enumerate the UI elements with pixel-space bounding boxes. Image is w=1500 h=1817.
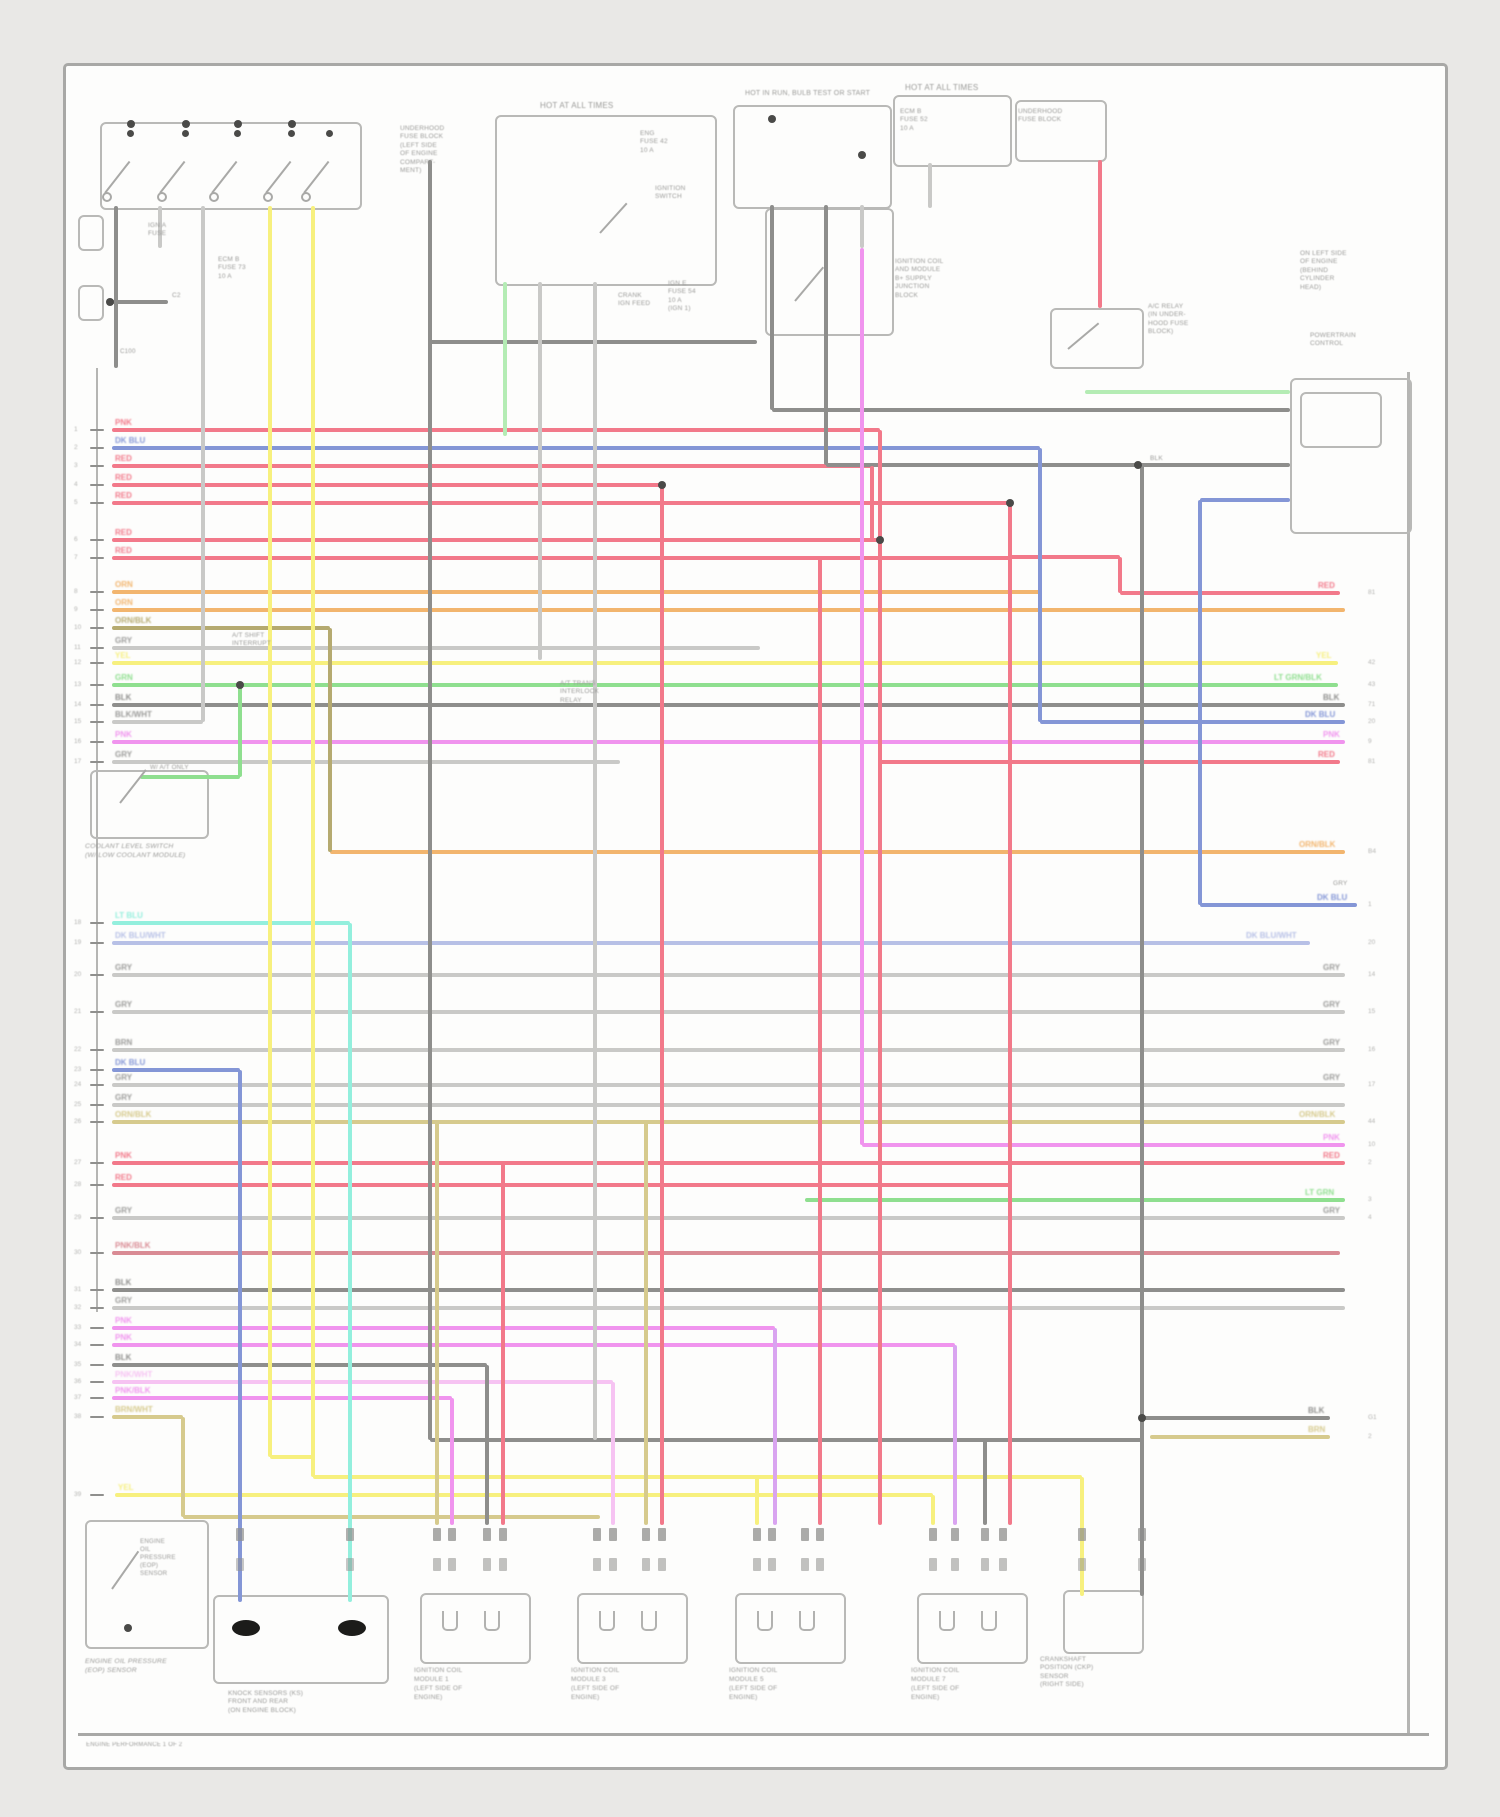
connector-stub bbox=[981, 1558, 989, 1571]
component-box-ckp-sensor-box bbox=[1063, 1590, 1144, 1654]
wire-h bbox=[1150, 1435, 1330, 1439]
wire-label: BRN bbox=[115, 1038, 132, 1047]
left-rail-tick bbox=[90, 1397, 104, 1399]
wire-end-label: RED bbox=[1323, 1151, 1340, 1160]
component-box-connector-c2 bbox=[78, 285, 104, 321]
connector-stub bbox=[999, 1528, 1007, 1541]
pin-number: 30 bbox=[74, 1249, 81, 1256]
pin-number: 17 bbox=[74, 758, 81, 765]
wire-label: RED bbox=[115, 473, 132, 482]
left-rail-tick bbox=[90, 1344, 104, 1346]
left-rail-tick bbox=[90, 647, 104, 649]
wire-h bbox=[112, 1048, 1345, 1052]
wire-h bbox=[430, 1438, 1142, 1442]
text-line: RELAY bbox=[560, 697, 582, 705]
text-line: FRONT AND REAR bbox=[228, 1698, 288, 1706]
connector-stub bbox=[816, 1558, 824, 1571]
component-box-connector-c1 bbox=[78, 215, 104, 251]
wire-label: GRY bbox=[115, 636, 132, 645]
wire-v bbox=[593, 282, 597, 1440]
pcm-pin-number: 14 bbox=[1368, 971, 1375, 978]
junction-dot bbox=[124, 1624, 132, 1632]
connector-stub bbox=[346, 1558, 354, 1571]
coil-caption-line: ENGINE) bbox=[414, 1694, 443, 1702]
connector-stub bbox=[658, 1528, 666, 1541]
connector-stub bbox=[951, 1528, 959, 1541]
pin-number: 11 bbox=[74, 644, 81, 651]
text-line: POSITION (CKP) bbox=[1040, 1664, 1093, 1672]
text-line: FUSE BLOCK bbox=[400, 133, 443, 141]
text-line: IGNITION bbox=[655, 185, 686, 193]
pin-number: 39 bbox=[74, 1491, 81, 1498]
pcm-pin-number: 2 bbox=[1368, 1433, 1372, 1440]
fuse-terminal bbox=[127, 130, 134, 137]
text-line: SENSOR bbox=[1040, 1673, 1069, 1681]
connector-stub bbox=[951, 1558, 959, 1571]
connector-stub bbox=[658, 1558, 666, 1571]
left-rail-tick bbox=[90, 609, 104, 611]
connector-stub bbox=[448, 1558, 456, 1571]
text-line: POWERTRAIN bbox=[1310, 332, 1356, 340]
text-line: FUSE 73 bbox=[218, 264, 246, 272]
wire-label: PNK bbox=[115, 730, 132, 739]
wire-end-label: GRY bbox=[1323, 1206, 1340, 1215]
component-box-relay-box bbox=[1050, 308, 1144, 369]
text-line: SENSOR bbox=[140, 1570, 167, 1578]
left-rail-tick bbox=[90, 684, 104, 686]
left-rail-tick bbox=[90, 539, 104, 541]
wire-h bbox=[112, 1120, 1345, 1124]
wire-h bbox=[112, 446, 1040, 450]
wire-v bbox=[311, 206, 315, 1477]
wire-label: GRY bbox=[115, 1093, 132, 1102]
connector-stub bbox=[816, 1528, 824, 1541]
pcm-pin-number: 81 bbox=[1368, 758, 1375, 765]
pin-number: 10 bbox=[74, 624, 81, 631]
coil-caption-line: IGNITION COIL bbox=[414, 1667, 462, 1675]
pin-number: 28 bbox=[74, 1181, 81, 1188]
pcm-pin-number: B4 bbox=[1368, 848, 1376, 855]
wire-v bbox=[485, 1365, 489, 1525]
text-line: B+ SUPPLY bbox=[895, 275, 932, 283]
wire-h bbox=[1200, 498, 1290, 502]
left-rail-tick bbox=[90, 502, 104, 504]
wire-h bbox=[112, 1306, 1345, 1310]
text-line: OIL bbox=[140, 1546, 151, 1554]
wire-end-label: RED bbox=[1318, 581, 1335, 590]
coil-caption-line: (LEFT SIDE OF bbox=[729, 1685, 777, 1693]
connector-stub bbox=[999, 1558, 1007, 1571]
wire-label: DK BLU bbox=[115, 436, 145, 445]
wire-h bbox=[112, 1068, 240, 1072]
bottom-rule bbox=[78, 1733, 1429, 1736]
wire-v bbox=[1098, 160, 1102, 308]
text-line: CRANK bbox=[618, 292, 642, 300]
pin-number: 27 bbox=[74, 1159, 81, 1166]
coil-pin bbox=[981, 1611, 997, 1631]
wire-v bbox=[268, 206, 272, 1457]
wire-v bbox=[860, 205, 864, 248]
junction-dot bbox=[876, 536, 884, 544]
wire-h bbox=[112, 538, 880, 542]
connector-stub bbox=[609, 1528, 617, 1541]
wire-v bbox=[1008, 503, 1012, 1525]
wire-h bbox=[112, 1216, 1345, 1220]
pcm-pin-number: 20 bbox=[1368, 939, 1375, 946]
wire-v bbox=[538, 282, 542, 660]
fuse-terminal bbox=[182, 130, 189, 137]
wire-end-label: YEL bbox=[1316, 651, 1332, 660]
wire-h bbox=[112, 703, 1345, 707]
wire-h bbox=[112, 501, 1010, 505]
connector-stub bbox=[1078, 1528, 1086, 1541]
pcm-pin-number: 10 bbox=[1368, 1141, 1375, 1148]
wire-v bbox=[348, 923, 352, 1602]
connector-stub bbox=[483, 1558, 491, 1571]
text-line: (RIGHT SIDE) bbox=[1040, 1681, 1084, 1689]
junction-dot bbox=[858, 151, 866, 159]
pin-number: 19 bbox=[74, 939, 81, 946]
coil-pin bbox=[599, 1611, 615, 1631]
wire-v bbox=[878, 430, 882, 1525]
left-rail-tick bbox=[90, 1416, 104, 1418]
wire-v bbox=[928, 163, 932, 208]
text-line: (W/ LOW COOLANT MODULE) bbox=[85, 852, 186, 860]
junction-dot bbox=[658, 481, 666, 489]
wire-h bbox=[826, 463, 1290, 467]
text-line: FUSE BLOCK bbox=[1018, 116, 1061, 124]
wire-v bbox=[931, 1495, 935, 1525]
text-line: IGN A bbox=[148, 222, 166, 230]
left-rail-tick bbox=[90, 465, 104, 467]
pcm-pin-number: 3 bbox=[1368, 1196, 1372, 1203]
left-rail-tick bbox=[90, 721, 104, 723]
wire-h bbox=[112, 661, 1338, 665]
left-rail-tick bbox=[90, 741, 104, 743]
wire-end-label: ORN/BLK bbox=[1299, 1110, 1335, 1119]
pcm-connector-rail bbox=[1407, 372, 1410, 1733]
pin-number: 36 bbox=[74, 1378, 81, 1385]
knock-sensor-terminal bbox=[232, 1620, 260, 1636]
wire-label: ORN bbox=[115, 580, 133, 589]
text-line: (LEFT SIDE bbox=[400, 142, 437, 150]
text-line: HOT AT ALL TIMES bbox=[905, 83, 978, 93]
wire-label: GRY bbox=[115, 1000, 132, 1009]
wire-label: RED bbox=[115, 528, 132, 537]
text-line: A/T SHIFT bbox=[232, 632, 264, 640]
text-line: W/ A/T ONLY bbox=[150, 764, 189, 772]
text-line: ENGINE PERFORMANCE 1 OF 2 bbox=[86, 1742, 182, 1750]
text-line: 10 A bbox=[218, 273, 232, 281]
left-rail-tick bbox=[90, 662, 104, 664]
pin-number: 5 bbox=[74, 499, 78, 506]
wire-end-label: GRY bbox=[1323, 963, 1340, 972]
wire-v bbox=[435, 1122, 439, 1525]
text-line: (EOP) SENSOR bbox=[85, 1667, 137, 1675]
connector-stub bbox=[346, 1528, 354, 1541]
wire-end-label: RED bbox=[1318, 750, 1335, 759]
coil-pin bbox=[641, 1611, 657, 1631]
text-line: (ON ENGINE BLOCK) bbox=[228, 1707, 296, 1715]
wire-end-label: GRY bbox=[1323, 1000, 1340, 1009]
component-box-knock-sensor-box bbox=[213, 1595, 389, 1684]
connector-stub bbox=[499, 1528, 507, 1541]
wire-h bbox=[183, 1515, 600, 1519]
pin-number: 25 bbox=[74, 1101, 81, 1108]
junction-dot bbox=[127, 120, 135, 128]
wire-h bbox=[112, 556, 1010, 560]
left-rail-tick bbox=[90, 1252, 104, 1254]
wire-v bbox=[860, 248, 864, 1145]
wire-h bbox=[112, 1161, 1345, 1165]
wire-label: ORN/BLK bbox=[115, 616, 151, 625]
wire-end-label: PNK bbox=[1323, 730, 1340, 739]
wire-label: PNK/WHT bbox=[115, 1370, 152, 1379]
wire-label: GRY bbox=[115, 1296, 132, 1305]
coil-caption-line: IGNITION COIL bbox=[571, 1667, 619, 1675]
left-rail-tick bbox=[90, 704, 104, 706]
pin-number: 23 bbox=[74, 1066, 81, 1073]
wire-label: PNK bbox=[115, 418, 132, 427]
wire-label: PNK/BLK bbox=[115, 1386, 151, 1395]
wire-h bbox=[112, 626, 330, 630]
wire-label: YEL bbox=[115, 651, 131, 660]
connector-stub bbox=[981, 1528, 989, 1541]
text-line: JUNCTION bbox=[895, 283, 929, 291]
left-rail-tick bbox=[90, 1327, 104, 1329]
ignition-coil-box bbox=[420, 1593, 531, 1664]
left-rail-tick bbox=[90, 922, 104, 924]
wire-v bbox=[770, 205, 774, 410]
coil-pin bbox=[799, 1611, 815, 1631]
wire-label: DK BLU/WHT bbox=[115, 931, 166, 940]
wire-v bbox=[503, 282, 507, 436]
fuse-terminal bbox=[263, 192, 273, 202]
left-rail-tick bbox=[90, 1084, 104, 1086]
text-line: (EOP) bbox=[140, 1562, 158, 1570]
wire-label: BLK/WHT bbox=[115, 710, 152, 719]
pcm-pin-number: 17 bbox=[1368, 1081, 1375, 1088]
text-line: UNDERHOOD bbox=[400, 125, 444, 133]
wire-v bbox=[824, 205, 828, 465]
junction-dot bbox=[234, 120, 242, 128]
connector-stub bbox=[433, 1528, 441, 1541]
pin-number: 35 bbox=[74, 1361, 81, 1368]
wire-label: LT BLU bbox=[115, 911, 143, 920]
left-rail-tick bbox=[90, 1289, 104, 1291]
wire-v bbox=[818, 558, 822, 1525]
pin-number: 26 bbox=[74, 1118, 81, 1125]
wire-h bbox=[112, 428, 880, 432]
pin-number: 7 bbox=[74, 554, 78, 561]
wire-h bbox=[313, 1475, 1082, 1479]
coil-caption-line: MODULE 7 bbox=[911, 1676, 946, 1684]
text-line: HOT IN RUN, BULB TEST OR START bbox=[745, 90, 870, 99]
wire-v bbox=[1198, 500, 1202, 905]
text-line: HOOD FUSE bbox=[1148, 320, 1188, 328]
text-line: BLOCK) bbox=[1148, 328, 1173, 336]
left-rail-tick bbox=[90, 591, 104, 593]
pin-number: 12 bbox=[74, 659, 81, 666]
wire-h bbox=[112, 1415, 183, 1419]
pcm-pin-number: 43 bbox=[1368, 681, 1375, 688]
wire-label: RED bbox=[115, 1173, 132, 1182]
text-line: IGN E bbox=[668, 280, 687, 288]
junction-dot bbox=[1138, 1414, 1146, 1422]
wire-h bbox=[110, 300, 168, 304]
knock-sensor-terminal bbox=[338, 1620, 366, 1636]
wire-h bbox=[772, 408, 1290, 412]
left-rail-tick bbox=[90, 1069, 104, 1071]
text-line: COOLANT LEVEL SWITCH bbox=[85, 843, 173, 851]
text-line: INTERRUPT bbox=[232, 640, 271, 648]
text-line: INTERLOCK bbox=[560, 688, 599, 696]
text-line: IGN FEED bbox=[618, 300, 650, 308]
text-line: C100 bbox=[120, 348, 136, 356]
wire-end-label: BLK bbox=[1308, 1406, 1324, 1415]
wire-h bbox=[112, 1103, 1345, 1107]
left-rail-tick bbox=[90, 1049, 104, 1051]
wire-label: YEL bbox=[118, 1483, 134, 1492]
fuse-terminal bbox=[157, 192, 167, 202]
left-rail-tick bbox=[90, 1011, 104, 1013]
connector-stub bbox=[768, 1528, 776, 1541]
ignition-coil-box bbox=[577, 1593, 688, 1664]
wire-end-label: BRN bbox=[1308, 1425, 1325, 1434]
junction-dot bbox=[106, 298, 114, 306]
wire-end-label: ORN/BLK bbox=[1299, 840, 1335, 849]
pin-number: 16 bbox=[74, 738, 81, 745]
coil-caption-line: (LEFT SIDE OF bbox=[571, 1685, 619, 1693]
fuse-terminal bbox=[301, 192, 311, 202]
text-line: ON LEFT SIDE bbox=[1300, 250, 1347, 258]
connector-stub bbox=[1138, 1558, 1146, 1571]
left-rail-tick bbox=[90, 429, 104, 431]
wire-h bbox=[880, 760, 1340, 764]
left-connector-rail bbox=[96, 368, 98, 1312]
wire-label: GRY bbox=[115, 963, 132, 972]
wire-h bbox=[112, 740, 1345, 744]
pcm-pin-number: 2 bbox=[1368, 1159, 1372, 1166]
pcm-pin-number: 20 bbox=[1368, 718, 1375, 725]
wire-label: BLK bbox=[115, 1353, 131, 1362]
left-rail-tick bbox=[90, 1217, 104, 1219]
wire-label: RED bbox=[115, 454, 132, 463]
pin-number: 15 bbox=[74, 718, 81, 725]
wire-label: PNK bbox=[115, 1316, 132, 1325]
left-rail-tick bbox=[90, 484, 104, 486]
fuse-terminal bbox=[326, 130, 333, 137]
connector-stub bbox=[642, 1558, 650, 1571]
left-rail-tick bbox=[90, 1121, 104, 1123]
wire-end-label: BLK bbox=[1323, 693, 1339, 702]
wire-h bbox=[1142, 1416, 1330, 1420]
text-line: ENG bbox=[640, 130, 655, 138]
wire-h bbox=[112, 1083, 1345, 1087]
coil-caption-line: (LEFT SIDE OF bbox=[911, 1685, 959, 1693]
wire-end-label: DK BLU bbox=[1317, 893, 1347, 902]
junction-dot bbox=[1134, 461, 1142, 469]
coil-pin bbox=[939, 1611, 955, 1631]
wire-label: PNK bbox=[115, 1333, 132, 1342]
wire-end-label: DK BLU bbox=[1305, 710, 1335, 719]
coil-caption-line: MODULE 3 bbox=[571, 1676, 606, 1684]
pin-number: 9 bbox=[74, 606, 78, 613]
component-box-pcm-inner-box bbox=[1300, 392, 1382, 448]
coil-caption-line: (LEFT SIDE OF bbox=[414, 1685, 462, 1693]
left-rail-tick bbox=[90, 1162, 104, 1164]
left-rail-tick bbox=[90, 1364, 104, 1366]
junction-dot bbox=[236, 681, 244, 689]
fuse-terminal bbox=[102, 192, 112, 202]
pcm-pin-number: 15 bbox=[1368, 1008, 1375, 1015]
wire-label: PNK/BLK bbox=[115, 1241, 151, 1250]
text-line: CYLINDER bbox=[1300, 275, 1334, 283]
pin-number: 13 bbox=[74, 681, 81, 688]
wire-v bbox=[1140, 465, 1144, 1596]
wire-label: GRY bbox=[115, 750, 132, 759]
wire-h bbox=[112, 1010, 1345, 1014]
pin-number: 4 bbox=[74, 481, 78, 488]
coil-caption-line: IGNITION COIL bbox=[729, 1667, 777, 1675]
wire-end-label: GRY bbox=[1323, 1038, 1340, 1047]
wire-v bbox=[983, 1440, 987, 1525]
component-box-coolant-level-switch bbox=[90, 770, 209, 839]
wire-h bbox=[330, 850, 1345, 854]
wire-label: PNK bbox=[115, 1151, 132, 1160]
wire-label: GRN bbox=[115, 673, 133, 682]
wire-v bbox=[611, 1382, 615, 1525]
wire-v bbox=[773, 1328, 777, 1525]
left-rail-tick bbox=[90, 627, 104, 629]
text-line: 10 A bbox=[640, 147, 654, 155]
wire-h bbox=[1040, 720, 1345, 724]
wire-h bbox=[112, 1380, 613, 1384]
wire-h bbox=[112, 941, 1310, 945]
wire-h bbox=[805, 1198, 1345, 1202]
left-rail-tick bbox=[90, 761, 104, 763]
wire-h bbox=[112, 483, 662, 487]
wire-end-label: LT GRN/BLK bbox=[1274, 673, 1322, 682]
wire-h bbox=[112, 1396, 452, 1400]
text-line: KNOCK SENSORS (KS) bbox=[228, 1690, 303, 1698]
connector-stub bbox=[801, 1528, 809, 1541]
connector-stub bbox=[1138, 1528, 1146, 1541]
pcm-pin-number: 1 bbox=[1368, 901, 1372, 908]
pin-number: 32 bbox=[74, 1304, 81, 1311]
connector-stub bbox=[433, 1558, 441, 1571]
wire-label: RED bbox=[115, 546, 132, 555]
pin-number: 33 bbox=[74, 1324, 81, 1331]
wire-h bbox=[1085, 390, 1290, 394]
text-line: FUSE 42 bbox=[640, 138, 668, 146]
pin-number: 6 bbox=[74, 536, 78, 543]
wire-v bbox=[428, 160, 432, 1440]
text-line: (BEHIND bbox=[1300, 267, 1328, 275]
text-line: CONTROL bbox=[1310, 340, 1343, 348]
pcm-pin-number: 16 bbox=[1368, 1046, 1375, 1053]
text-line: (IGN 1) bbox=[668, 305, 691, 313]
left-rail-tick bbox=[90, 942, 104, 944]
wire-h bbox=[112, 1288, 1345, 1292]
text-line: ENGINE bbox=[140, 1538, 165, 1546]
wire-v bbox=[114, 206, 118, 368]
coil-caption-line: MODULE 5 bbox=[729, 1676, 764, 1684]
text-line: BLK bbox=[1150, 455, 1163, 463]
wire-label: DK BLU bbox=[115, 1058, 145, 1067]
fuse-terminal bbox=[288, 130, 295, 137]
wire-h bbox=[1200, 903, 1357, 907]
